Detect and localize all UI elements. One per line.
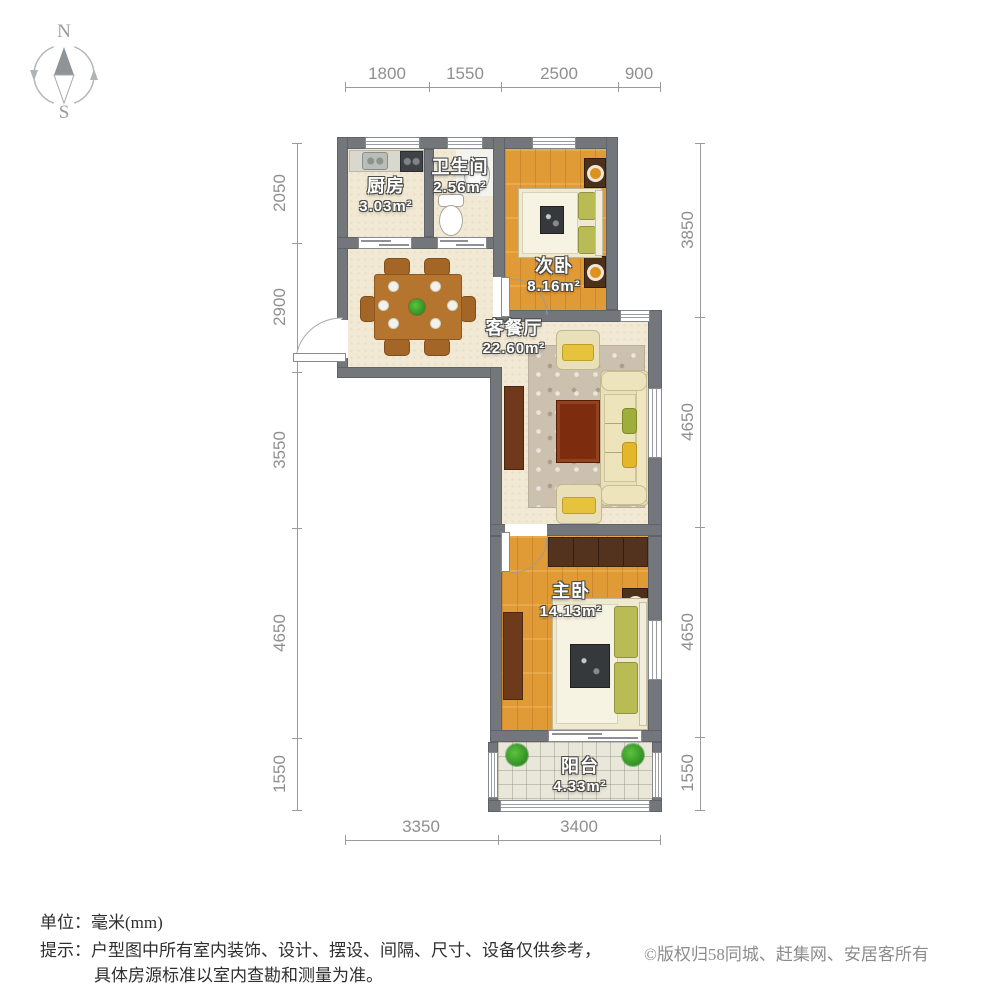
room-label-second-bedroom: 次卧 8.16m² <box>527 256 581 296</box>
kitchen-window <box>365 137 420 149</box>
unit-value: 毫米(mm) <box>91 913 163 932</box>
dim-tick <box>429 82 430 92</box>
dim-tick <box>292 738 302 739</box>
slider-panel <box>379 244 409 246</box>
dim-line-right <box>700 143 701 810</box>
nightstand <box>584 158 606 188</box>
room-area: 22.60m² <box>483 340 546 358</box>
master-door-leaf <box>501 532 510 572</box>
tip-text-2: 具体房源标准以室内查勘和测量为准。 <box>94 966 383 985</box>
compass-ring-left <box>34 47 54 103</box>
dim-tick <box>695 143 705 144</box>
master-door-arc <box>510 536 548 574</box>
dining-chair <box>384 338 410 356</box>
slider-panel <box>456 244 484 246</box>
balcony-right-window <box>652 752 662 798</box>
room-label-kitchen: 厨房 3.03m² <box>359 176 413 216</box>
room-name: 次卧 <box>527 256 581 278</box>
balcony-bottom-window <box>500 800 650 812</box>
room-name: 厨房 <box>359 176 413 198</box>
armchair-cushion <box>562 497 596 514</box>
plate <box>430 318 441 329</box>
room-label-master-bedroom: 主卧 14.13m² <box>540 581 603 621</box>
dim-line-top <box>345 87 660 88</box>
tv-cabinet <box>504 386 524 470</box>
dim-tick <box>292 810 302 811</box>
sofa-armrest <box>601 371 647 391</box>
wardrobe <box>548 537 648 567</box>
dim-tick <box>292 372 302 373</box>
compass-north-label: N <box>57 21 71 42</box>
room-name: 客餐厅 <box>483 318 546 340</box>
dim-label-top: 1550 <box>435 64 495 84</box>
room-label-living-dining: 客餐厅 22.60m² <box>483 318 546 358</box>
dim-label-right: 1550 <box>678 743 698 803</box>
compass-needle-north <box>54 47 74 75</box>
balcony-plant <box>622 744 644 766</box>
footer-tip-line1: 提示：户型图中所有室内装饰、设计、摆设、间隔、尺寸、设备仅供参考， <box>40 936 601 961</box>
coffee-table <box>556 400 600 463</box>
dim-tick <box>498 835 499 845</box>
dim-tick <box>695 317 705 318</box>
tip-text-1: 户型图中所有室内装饰、设计、摆设、间隔、尺寸、设备仅供参考， <box>91 941 601 960</box>
wall-dining-bottom <box>337 367 502 378</box>
kitchen-stove <box>400 151 423 172</box>
compass-south-label: S <box>59 102 70 120</box>
plate <box>447 300 458 311</box>
nightstand <box>584 256 606 288</box>
lamp-icon <box>587 264 604 281</box>
room-name: 主卧 <box>540 581 603 603</box>
sofa-pillow-green <box>622 408 637 434</box>
slider-panel <box>440 240 468 242</box>
wall-living-left <box>490 367 502 536</box>
room-area: 14.13m² <box>540 603 603 621</box>
dim-tick <box>695 810 705 811</box>
dim-label-left: 2900 <box>270 277 290 337</box>
sofa-pillow-yellow <box>622 442 637 468</box>
footer-tip-line2: 具体房源标准以室内查勘和测量为准。 <box>94 961 383 986</box>
compass-needle-south <box>54 75 74 103</box>
room-name: 阳台 <box>553 756 607 778</box>
slider-panel <box>588 737 638 739</box>
bathroom-sliding-door <box>437 237 487 249</box>
room-area: 2.56m² <box>432 179 489 197</box>
kitchen-sink <box>362 152 388 170</box>
dim-label-left: 1550 <box>270 744 290 804</box>
master-right-window <box>648 620 662 680</box>
dresser <box>503 612 523 700</box>
second-bedroom-door-leaf <box>501 277 510 317</box>
room-label-balcony: 阳台 4.33m² <box>553 756 607 796</box>
bed-pillow <box>578 226 596 254</box>
copyright-text: ©版权归58同城、赶集网、安居客所有 <box>644 945 929 964</box>
bed-pillow <box>578 192 596 220</box>
dim-label-top: 1800 <box>357 64 417 84</box>
dim-label-left: 4650 <box>270 603 290 663</box>
bed-pillow <box>614 606 638 658</box>
unit-label: 单位： <box>40 913 91 932</box>
room-area: 4.33m² <box>553 778 607 796</box>
bed-headboard <box>639 602 647 726</box>
plate <box>388 281 399 292</box>
dim-tick <box>292 528 302 529</box>
lamp-icon <box>587 165 604 182</box>
slider-panel <box>361 240 391 242</box>
compass: N S <box>18 20 110 120</box>
dim-label-left: 2050 <box>270 163 290 223</box>
plate <box>388 318 399 329</box>
bed-tray <box>570 644 610 688</box>
dining-chair <box>424 338 450 356</box>
floor-plan-page: N S <box>0 0 1000 1000</box>
room-name: 卫生间 <box>432 157 489 179</box>
master-door-opening <box>505 524 547 536</box>
table-plant <box>409 299 425 315</box>
sofa-armrest <box>601 485 647 505</box>
bed-pillow <box>614 662 638 714</box>
dim-label-right: 4650 <box>678 392 698 452</box>
dim-tick <box>695 737 705 738</box>
compass-arrowhead-right <box>90 69 98 80</box>
balcony-plant <box>506 744 528 766</box>
plate <box>378 300 389 311</box>
dim-tick <box>292 243 302 244</box>
second-bedroom-window <box>532 137 576 149</box>
copyright-notice: ©版权归58同城、赶集网、安居客所有 <box>644 940 929 965</box>
dim-tick <box>292 143 302 144</box>
footer-unit-line: 单位：毫米(mm) <box>40 908 163 933</box>
dining-chair <box>460 296 476 322</box>
tip-label: 提示： <box>40 941 91 960</box>
room-area: 8.16m² <box>527 278 581 296</box>
dim-tick <box>695 527 705 528</box>
dim-tick <box>345 82 346 92</box>
living-top-window <box>620 310 650 322</box>
dim-tick <box>345 835 346 845</box>
compass-ring-right <box>74 47 94 103</box>
entry-door-leaf <box>293 353 346 362</box>
dim-label-bottom: 3350 <box>391 817 451 837</box>
plate <box>430 281 441 292</box>
room-area: 3.03m² <box>359 198 413 216</box>
armchair-cushion <box>562 344 594 361</box>
dim-line-bottom <box>345 840 660 841</box>
room-label-bathroom: 卫生间 2.56m² <box>432 157 489 197</box>
balcony-sliding-door <box>548 730 642 742</box>
dim-label-bottom: 3400 <box>549 817 609 837</box>
dim-label-left: 3550 <box>270 420 290 480</box>
dim-label-right: 4650 <box>678 602 698 662</box>
toilet-bowl <box>439 205 463 236</box>
bed-tray <box>540 206 564 234</box>
slider-panel <box>552 733 602 735</box>
balcony-left-window <box>488 752 498 798</box>
wall-second-bedroom-right <box>606 137 618 310</box>
bathroom-window <box>447 137 483 149</box>
bed-headboard <box>595 190 603 256</box>
dim-tick <box>660 835 661 845</box>
dim-tick <box>501 82 502 92</box>
kitchen-sliding-door <box>358 237 412 249</box>
dim-label-top: 2500 <box>529 64 589 84</box>
living-right-window <box>648 388 662 458</box>
compass-arrowhead-left <box>30 70 38 81</box>
dim-label-top: 900 <box>614 64 664 84</box>
dim-label-right: 3850 <box>678 200 698 260</box>
sofa-back <box>636 374 647 502</box>
